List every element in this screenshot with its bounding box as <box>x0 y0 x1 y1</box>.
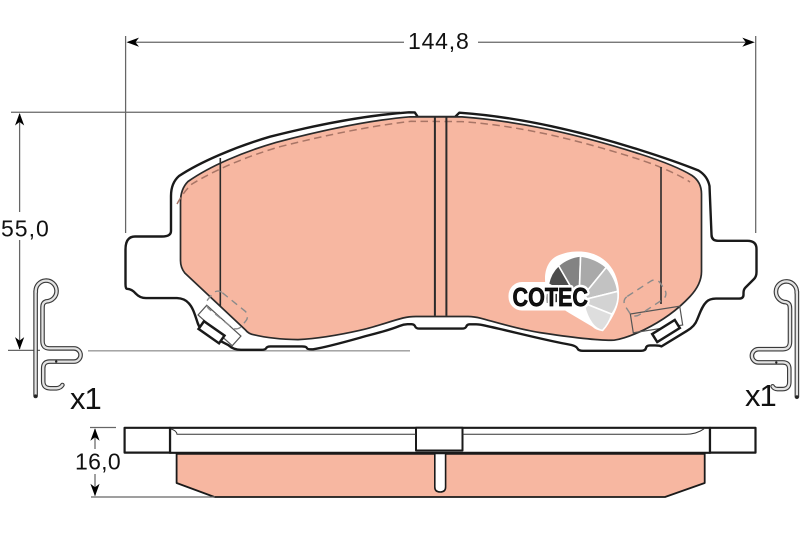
svg-text:COTEC: COTEC <box>513 283 588 312</box>
svg-text:x1: x1 <box>70 381 101 416</box>
svg-text:55,0: 55,0 <box>1 216 50 242</box>
svg-text:x1: x1 <box>745 378 776 413</box>
svg-text:144,8: 144,8 <box>408 28 470 54</box>
svg-text:16,0: 16,0 <box>75 449 121 475</box>
